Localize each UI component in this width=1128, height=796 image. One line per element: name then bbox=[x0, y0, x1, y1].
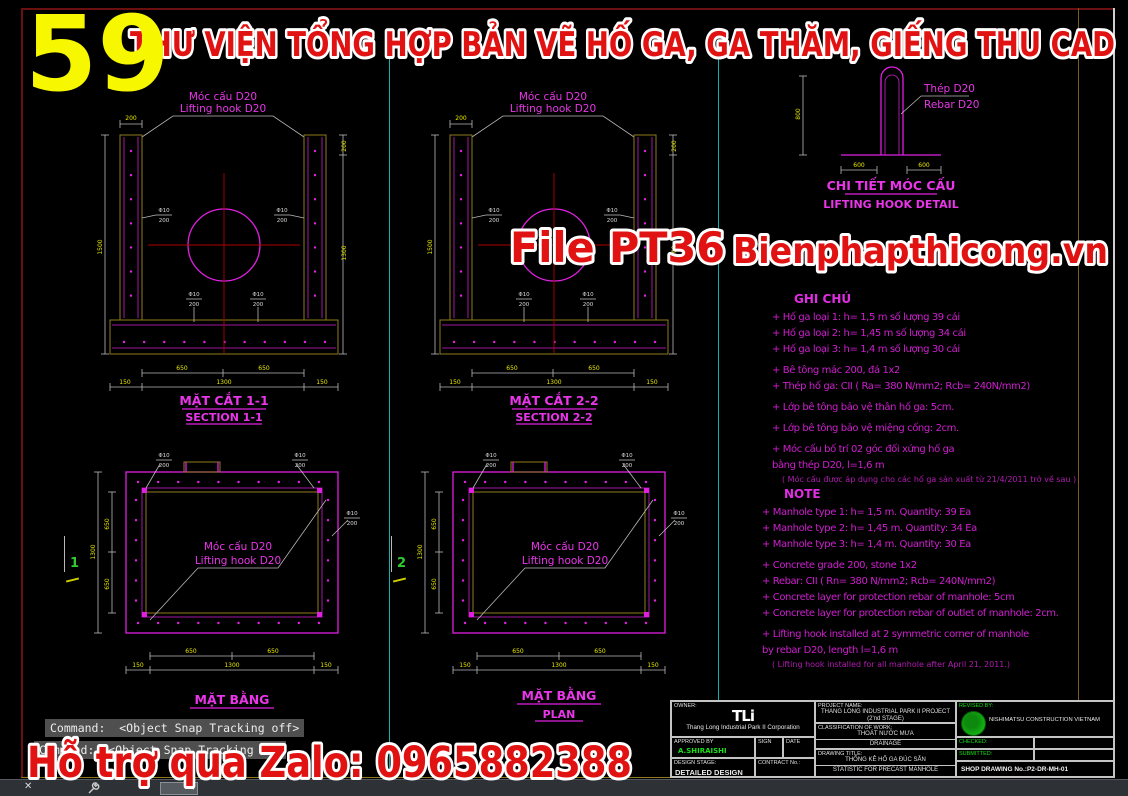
drawing-title-cell: DRAWING TITLE: THỐNG KÊ HỐ GA ĐÚC SẴN ST… bbox=[815, 749, 956, 777]
hook-label-vi: Móc cấu D20 bbox=[531, 541, 599, 553]
rebar-callout: 200 bbox=[253, 302, 264, 308]
rebar-callout: Φ10 bbox=[621, 453, 633, 459]
title-block: OWNER: TLi Thang Long Industrial Park II… bbox=[670, 700, 1115, 778]
revised-by-label: REVISED BY: bbox=[957, 702, 1113, 709]
rebar-callout: Φ10 bbox=[252, 292, 264, 298]
notes-vietnamese: GHI CHÚ + Hố ga loại 1: h= 1,5 m số lượn… bbox=[772, 292, 1076, 484]
hook-label-en: Lifting hook D20 bbox=[510, 103, 596, 115]
dimensions: 650 650 1300 650 650 150 1300 150 bbox=[90, 472, 338, 674]
note-line: + Rebar: CII ( Rn= 380 N/mm2; Rcb= 240N/… bbox=[762, 574, 1058, 590]
note-line: + Hố ga loại 3: h= 1,4 m số lượng 30 cái bbox=[772, 342, 1076, 358]
hook-label-vi: Móc cấu D20 bbox=[189, 91, 257, 103]
rebar-callout: Φ10 bbox=[485, 453, 497, 459]
dim-label: 1500 bbox=[97, 239, 104, 254]
submitted-value-cell bbox=[1034, 749, 1114, 761]
rebar-callout: 200 bbox=[347, 521, 358, 527]
rebar-callouts: Φ10 200 Φ10 200 Φ10 200 bbox=[146, 453, 360, 536]
rebar-callout: 200 bbox=[159, 463, 170, 469]
dim-label: 1300 bbox=[417, 544, 424, 559]
note-line: + Manhole type 2: h= 1,45 m. Quantity: 3… bbox=[762, 521, 1058, 537]
tli-logo: TLi bbox=[672, 709, 814, 723]
watermark-file: File PT36 bbox=[505, 222, 730, 274]
rebar-callout: Φ10 bbox=[582, 292, 594, 298]
drawing-title-vi: THỐNG KÊ HỐ GA ĐÚC SẴN bbox=[816, 757, 955, 764]
rebar-callout: Φ10 bbox=[346, 511, 358, 517]
dim-label: 650 bbox=[512, 648, 524, 655]
note-line: + Lớp bê tông bảo vệ thân hố ga: 5cm. bbox=[772, 400, 1076, 416]
rebar-callout: 200 bbox=[583, 302, 594, 308]
dim-label: 600 bbox=[918, 162, 930, 169]
detail-title-vi: CHI TIẾT MÓC CẤU bbox=[827, 176, 956, 193]
section-title-en: SECTION 1-1 bbox=[185, 411, 262, 424]
project-name-cell: PROJECT NAME: THANG LONG INDUSTRIAL PARK… bbox=[815, 701, 956, 723]
checked-cell: CHECKED: bbox=[956, 737, 1034, 749]
dim-label: 650 bbox=[594, 648, 606, 655]
plan-1-drawing: Móc cấu D20 Lifting hook D20 650 650 130… bbox=[86, 448, 378, 723]
view-separator-1 bbox=[389, 55, 390, 778]
design-stage-value: DETAILED DESIGN bbox=[672, 766, 754, 777]
design-stage-cell: DESIGN STAGE: DETAILED DESIGN bbox=[671, 758, 755, 777]
rebar-callout: 200 bbox=[189, 302, 200, 308]
dim-label: 150 bbox=[646, 379, 658, 386]
shop-drawing-cell: SHOP DRAWING No.:P2-DR-MH-01 bbox=[956, 761, 1114, 777]
rebar-callout: Φ10 bbox=[673, 511, 685, 517]
rebar-callout: Φ10 bbox=[158, 453, 170, 459]
watermark-zalo: Hỗ trợ qua Zalo: 0965882388 bbox=[22, 733, 642, 791]
section-title-vi: MẶT CẮT 1-1 bbox=[179, 392, 268, 408]
project-name-line1: THANG LONG INDUSTRIAL PARK II PROJECT bbox=[816, 709, 955, 716]
dim-label: 200 bbox=[125, 115, 137, 122]
company-name: NISHIMATSU CONSTRUCTION VIETNAM bbox=[989, 717, 1111, 723]
rebar-callouts: Φ10 200 Φ10 200 Φ10 200 bbox=[473, 453, 687, 536]
hook-leader: Móc cấu D20 Lifting hook D20 bbox=[472, 91, 634, 137]
rebar-callout: 200 bbox=[159, 218, 170, 224]
submitted-label: SUBMITTED: bbox=[957, 750, 1033, 757]
revised-by-cell: REVISED BY: NISHIMATSU CONSTRUCTION VIET… bbox=[956, 701, 1114, 737]
rebar-callout: Φ10 bbox=[188, 292, 200, 298]
section-title-en: SECTION 2-2 bbox=[515, 411, 592, 424]
checked-label: CHECKED: bbox=[957, 738, 1033, 745]
sign-cell: SIGN bbox=[755, 737, 783, 758]
rebar-callout: Φ10 bbox=[518, 292, 530, 298]
dimensions: 650 650 1300 650 650 150 1300 150 bbox=[417, 472, 665, 674]
dim-label: 1300 bbox=[341, 245, 348, 260]
note-line: + Lớp bê tông bảo vệ miệng cống: 2cm. bbox=[772, 421, 1076, 437]
view-title: MẶT CẮT 2-2 SECTION 2-2 bbox=[509, 392, 598, 424]
rebar-callouts: Φ10 200 Φ10 200 Φ10 200 Φ10 200 bbox=[142, 208, 304, 322]
notes-vi-title: GHI CHÚ bbox=[772, 292, 1076, 306]
note-line: + Thép hố ga: CII ( Ra= 380 N/mm2; Rcb= … bbox=[772, 379, 1076, 395]
dim-label: 200 bbox=[455, 115, 467, 122]
section-marker-flag-icon bbox=[66, 577, 79, 582]
sheet-border-top bbox=[21, 8, 1113, 10]
section-marker-number: 1 bbox=[70, 556, 79, 571]
hook-leader: Móc cấu D20 Lifting hook D20 bbox=[150, 500, 326, 620]
dim-label: 1500 bbox=[427, 239, 434, 254]
plan-title-en: PLAN bbox=[543, 708, 576, 721]
watermark-file-text: File PT36 bbox=[510, 223, 725, 272]
note-line: by rebar D20, length l=1,6 m bbox=[762, 643, 1058, 659]
note-line: + Móc cấu bố trí 02 góc đối xứng hố ga bbox=[772, 442, 1076, 458]
note-line: + Concrete grade 200, stone 1x2 bbox=[762, 558, 1058, 574]
rebar-callout: Φ10 bbox=[294, 453, 306, 459]
section-marker-flag-icon bbox=[393, 577, 406, 582]
rebar-callout: 200 bbox=[674, 521, 685, 527]
rebar-label-en: Rebar D20 bbox=[924, 99, 979, 111]
dim-label: 650 bbox=[506, 365, 518, 372]
sign-label: SIGN bbox=[756, 738, 782, 745]
hook-label-vi: Móc cấu D20 bbox=[519, 91, 587, 103]
project-name-line2: (2'nd STAGE) bbox=[816, 716, 955, 723]
hook-label-en: Lifting hook D20 bbox=[180, 103, 266, 115]
owner-name: Thang Long Industrial Park II Corporatio… bbox=[672, 724, 814, 731]
hook-leader: Móc cấu D20 Lifting hook D20 bbox=[477, 500, 653, 620]
classification-cell: CLASSIFICATION OF WORK: THOÁT NƯỚC MƯA D… bbox=[815, 723, 956, 749]
rebar-callout: 200 bbox=[277, 218, 288, 224]
hook-label-en: Lifting hook D20 bbox=[522, 555, 608, 567]
banner-title-text: THƯ VIỆN TỔNG HỢP BẢN VẼ HỐ GA, GA THĂM,… bbox=[130, 18, 1115, 65]
dim-label: 650 bbox=[176, 365, 188, 372]
dim-label: 150 bbox=[316, 379, 328, 386]
section-marker-number: 2 bbox=[397, 556, 406, 571]
detail-title-en: LIFTING HOOK DETAIL bbox=[823, 198, 958, 211]
note-line: + Manhole type 1: h= 1,5 m. Quantity: 39… bbox=[762, 505, 1058, 521]
view-title: CHI TIẾT MÓC CẤU LIFTING HOOK DETAIL bbox=[823, 176, 958, 211]
walls bbox=[120, 135, 326, 320]
note-footnote: ( Lifting hook installed for all manhole… bbox=[762, 660, 1058, 669]
banner-number: 59 bbox=[25, 10, 170, 98]
date-cell: DATE bbox=[783, 737, 815, 758]
dim-label: 150 bbox=[320, 662, 332, 669]
view-title: MẶT CẮT 1-1 SECTION 1-1 bbox=[179, 392, 268, 424]
project-name-label: PROJECT NAME: bbox=[816, 702, 955, 709]
nishimatsu-logo bbox=[961, 711, 986, 736]
dim-label: 150 bbox=[647, 662, 659, 669]
submitted-cell: SUBMITTED: bbox=[956, 749, 1034, 761]
notes-en-title: NOTE bbox=[762, 487, 1058, 501]
note-line: + Lifting hook installed at 2 symmetric … bbox=[762, 627, 1058, 643]
drawing-title-en: STATISTIC FOR PRECAST MANHOLE bbox=[816, 765, 955, 774]
dim-label: 650 bbox=[104, 578, 111, 590]
notes-english: NOTE + Manhole type 1: h= 1,5 m. Quantit… bbox=[762, 487, 1058, 669]
note-line: + Manhole type 3: h= 1,4 m. Quantity: 30… bbox=[762, 537, 1058, 553]
dim-label: 200 bbox=[671, 140, 678, 152]
dimensions: 1500 200 200 1300 650 650 150 1300 150 bbox=[97, 115, 348, 391]
view-title: MẶT BẰNG PLAN bbox=[517, 687, 601, 721]
rebar-leader: Thép D20 Rebar D20 bbox=[901, 83, 979, 114]
dim-label: 200 bbox=[341, 140, 348, 152]
note-line: + Concrete layer for protection rebar of… bbox=[762, 590, 1058, 606]
contract-label: CONTRACT No.: bbox=[756, 759, 814, 766]
watermark-site: Bienphapthicong.vn bbox=[728, 227, 1113, 275]
dim-label: 1300 bbox=[216, 379, 231, 386]
hook-shape bbox=[841, 67, 941, 155]
rebar-callout: Φ10 bbox=[158, 208, 170, 214]
classification-label: CLASSIFICATION OF WORK: bbox=[816, 724, 955, 731]
note-line: + Hố ga loại 1: h= 1,5 m số lượng 39 cái bbox=[772, 310, 1076, 326]
lifting-hook-detail-drawing: Thép D20 Rebar D20 800 600 600 CHI TIẾT … bbox=[793, 52, 971, 217]
dim-label: 1300 bbox=[90, 544, 97, 559]
section-1-1-drawing: Móc cấu D20 Lifting hook D20 1500 200 bbox=[98, 85, 350, 425]
classification-vi: THOÁT NƯỚC MƯA bbox=[816, 731, 955, 738]
title-block-owner-cell: OWNER: TLi Thang Long Industrial Park II… bbox=[671, 701, 815, 737]
dim-label: 150 bbox=[119, 379, 131, 386]
checked-value-cell bbox=[1034, 737, 1114, 749]
dim-label: 600 bbox=[853, 162, 865, 169]
shop-drawing-number: SHOP DRAWING No.:P2-DR-MH-01 bbox=[957, 762, 1113, 773]
opening-circle bbox=[148, 173, 300, 353]
rebar-callout: 200 bbox=[622, 463, 633, 469]
date-label: DATE bbox=[784, 738, 814, 745]
dim-label: 650 bbox=[104, 518, 111, 530]
rebar-callout: 200 bbox=[519, 302, 530, 308]
dim-label: 150 bbox=[449, 379, 461, 386]
note-line: + Hố ga loại 2: h= 1,45 m số lượng 34 cá… bbox=[772, 326, 1076, 342]
note-line: + Concrete layer for protection rebar of… bbox=[762, 606, 1058, 622]
rebar-label-vi: Thép D20 bbox=[923, 83, 975, 95]
hook-label-en: Lifting hook D20 bbox=[195, 555, 281, 567]
rebar-callout: Φ10 bbox=[606, 208, 618, 214]
dim-label: 1300 bbox=[551, 662, 566, 669]
classification-en: DRAINAGE bbox=[816, 739, 955, 748]
dim-label: 650 bbox=[431, 578, 438, 590]
dim-label: 1300 bbox=[546, 379, 561, 386]
note-footnote: ( Móc cấu được áp dụng cho các hố ga sản… bbox=[772, 475, 1076, 484]
view-separator-2 bbox=[718, 55, 719, 700]
hook-label-vi: Móc cấu D20 bbox=[204, 541, 272, 553]
design-stage-label: DESIGN STAGE: bbox=[672, 759, 754, 766]
sheet-border-right-inner bbox=[1078, 8, 1079, 778]
dim-label: 1300 bbox=[224, 662, 239, 669]
section-title-vi: MẶT CẮT 2-2 bbox=[509, 392, 598, 408]
banner-title: THƯ VIỆN TỔNG HỢP BẢN VẼ HỐ GA, GA THĂM,… bbox=[130, 20, 1120, 68]
approved-label: APPROVED BY bbox=[672, 738, 754, 745]
contract-cell: CONTRACT No.: bbox=[755, 758, 815, 777]
rebar-callout: Φ10 bbox=[488, 208, 500, 214]
dim-label: 800 bbox=[795, 108, 802, 120]
dim-label: 650 bbox=[258, 365, 270, 372]
dim-label: 650 bbox=[185, 648, 197, 655]
approved-cell: APPROVED BY A.SHIRAISHI bbox=[671, 737, 755, 758]
rebar-callout: Φ10 bbox=[276, 208, 288, 214]
rebar-callout: 200 bbox=[295, 463, 306, 469]
sheet-border-right-outer bbox=[1113, 8, 1115, 778]
note-line: + Bê tông mác 200, đá 1x2 bbox=[772, 363, 1076, 379]
section-marker-1: 1 bbox=[64, 536, 83, 572]
note-line: bằng thép D20, l=1,6 m bbox=[772, 458, 1076, 474]
dim-label: 650 bbox=[431, 518, 438, 530]
plan-title-vi: MẶT BẰNG bbox=[522, 687, 597, 703]
dim-label: 650 bbox=[267, 648, 279, 655]
drawing-title-label: DRAWING TITLE: bbox=[816, 750, 955, 757]
section-marker-2: 2 bbox=[391, 536, 410, 572]
dim-label: 150 bbox=[132, 662, 144, 669]
dimensions: 800 600 600 bbox=[795, 76, 941, 174]
watermark-zalo-text: Hỗ trợ qua Zalo: 0965882388 bbox=[27, 738, 632, 788]
watermark-site-text: Bienphapthicong.vn bbox=[733, 231, 1108, 272]
approved-name: A.SHIRAISHI bbox=[672, 745, 754, 755]
sheet-border-left bbox=[21, 8, 23, 778]
view-title: MẶT BẰNG bbox=[190, 691, 274, 708]
dim-label: 150 bbox=[459, 662, 471, 669]
plan-2-drawing: Móc cấu D20 Lifting hook D20 650 650 130… bbox=[413, 448, 705, 723]
dim-label: 650 bbox=[588, 365, 600, 372]
rebar-callout: 200 bbox=[489, 218, 500, 224]
plan-title-vi: MẶT BẰNG bbox=[195, 691, 270, 707]
rebar-callout: 200 bbox=[486, 463, 497, 469]
